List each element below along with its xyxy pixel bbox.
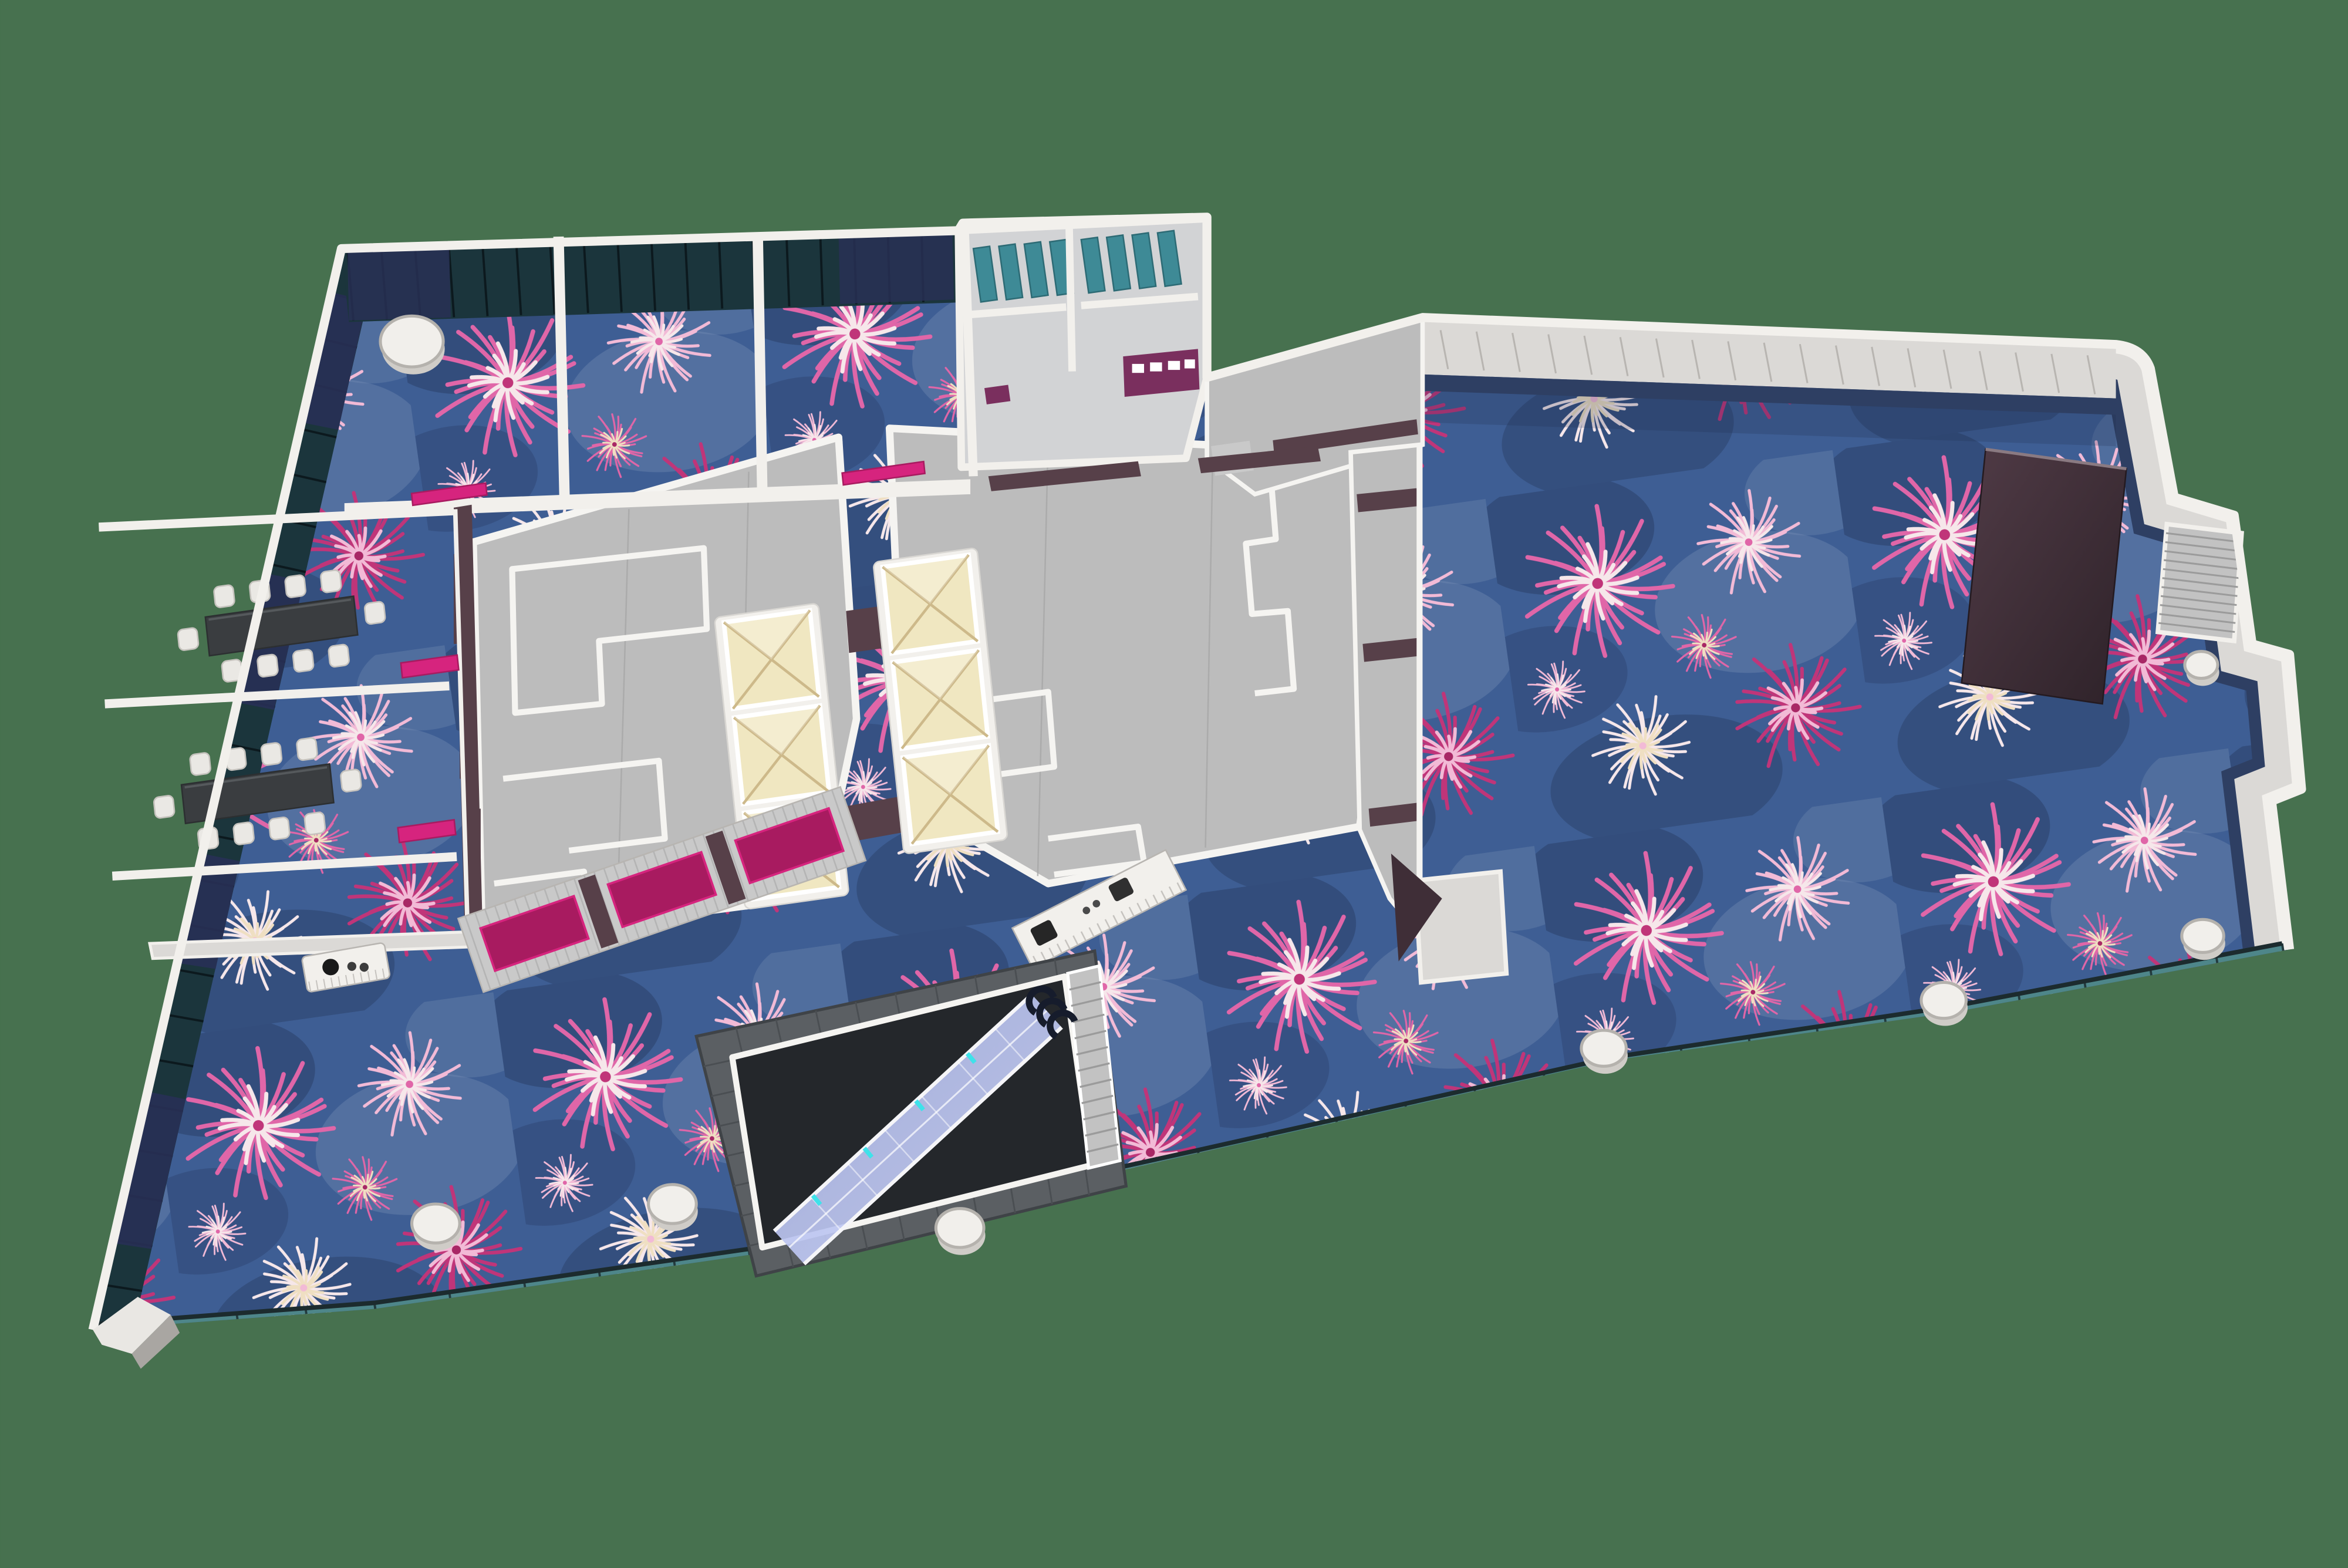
column-cap [1921,982,1966,1018]
chair [285,575,306,598]
chair [340,769,362,793]
toilet-partition [1069,228,1072,372]
chair [364,601,386,625]
chair [328,644,350,667]
floorplan-render-scene [0,0,2348,1568]
chair [296,737,318,761]
chair [321,569,342,593]
chair [177,628,199,651]
chair [190,752,211,775]
chair [214,585,235,608]
column-cap [380,316,443,367]
room-partition [758,234,763,488]
chair [233,822,255,845]
chair [304,812,326,835]
column-group [380,316,445,374]
column-group [2182,919,2225,960]
column-group [1581,1030,1628,1074]
urinal-unit [984,385,1010,404]
chair [292,649,314,672]
column-cap [1581,1030,1627,1066]
column-cap [412,1204,460,1243]
column-cap [649,1185,697,1223]
column-group [2185,652,2219,686]
column-group [649,1185,698,1231]
chair [257,654,279,677]
column-cap [2182,919,2224,952]
column-cap [936,1209,984,1247]
curtain-panel [348,248,451,320]
curtain-panel [839,231,954,304]
column-cap [2185,652,2218,679]
column-group [412,1204,461,1250]
column-group [936,1209,985,1255]
chair [261,742,282,766]
stair-block [2158,524,2242,641]
media-wall-panel [1962,449,2127,704]
floorplan-svg [0,0,2348,1568]
chair [153,795,175,818]
chair [268,817,290,840]
toilet-block [959,218,1207,467]
room-partition [559,237,565,498]
column-group [1921,982,1968,1026]
